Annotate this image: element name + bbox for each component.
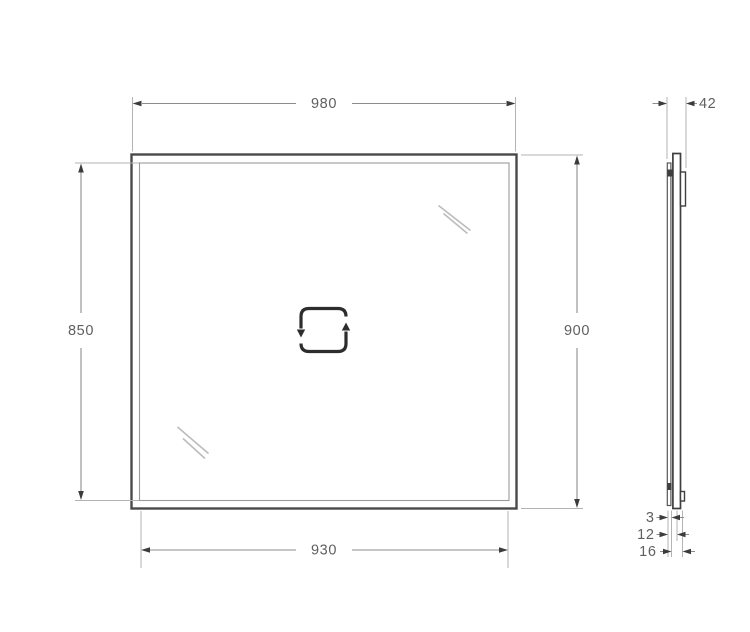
dimension-detail-3: 3: [646, 510, 684, 526]
dimension-label-left-height: 850: [68, 323, 94, 339]
dimension-label-detail-top: 3: [646, 510, 655, 526]
arrowhead-left: [141, 547, 150, 553]
extension-lines: [141, 511, 508, 568]
dimension-label-top-width: 980: [311, 96, 337, 112]
arrowhead-down: [574, 499, 580, 508]
front-view: [132, 155, 517, 509]
side-glass-layer: [667, 163, 671, 506]
side-bottom-clip: [667, 483, 671, 490]
drawing-canvas: 980 850 900 930: [0, 0, 750, 632]
arrowhead-right: [659, 101, 668, 106]
arrowhead-down: [78, 491, 84, 500]
side-top-mounting-bracket: [681, 172, 686, 206]
arrowhead-right: [663, 549, 672, 554]
dimension-label-detail-middle: 12: [637, 527, 654, 543]
arrowhead-left: [672, 515, 681, 520]
dimension-top-width: 980: [133, 96, 516, 151]
dimension-detail-stack: 3 12 16: [637, 510, 695, 560]
dimension-detail-12: 12: [637, 527, 689, 543]
side-top-clip: [667, 170, 673, 177]
mirror-technical-drawing: 980 850 900 930: [0, 0, 750, 632]
arrowhead-right: [499, 547, 508, 553]
arrowhead-up: [574, 156, 580, 165]
dimension-depth: 42: [653, 96, 717, 168]
dimension-label-bottom-width: 930: [311, 543, 337, 559]
arrowhead-left: [133, 101, 142, 107]
dimension-label-detail-bottom: 16: [639, 544, 656, 560]
dimension-detail-16: 16: [639, 544, 695, 560]
arrowhead-right: [507, 101, 516, 107]
side-view: [667, 154, 685, 509]
dimension-label-depth: 42: [699, 96, 716, 112]
side-back-panel: [673, 154, 681, 509]
arrowhead-left: [686, 101, 695, 106]
arrowhead-right: [660, 532, 669, 537]
dimension-bottom-width: 930: [141, 511, 508, 568]
side-bottom-mounting-bracket: [681, 492, 685, 502]
arrowhead-left: [683, 549, 692, 554]
dimension-right-height: 900: [521, 155, 590, 509]
arrowhead-up: [78, 164, 84, 173]
dimension-label-right-height: 900: [564, 323, 590, 339]
arrowhead-right: [660, 515, 669, 520]
arrowhead-left: [677, 532, 686, 537]
mirror-outer-frame: [132, 155, 517, 509]
dimension-left-height: 850: [68, 163, 139, 501]
